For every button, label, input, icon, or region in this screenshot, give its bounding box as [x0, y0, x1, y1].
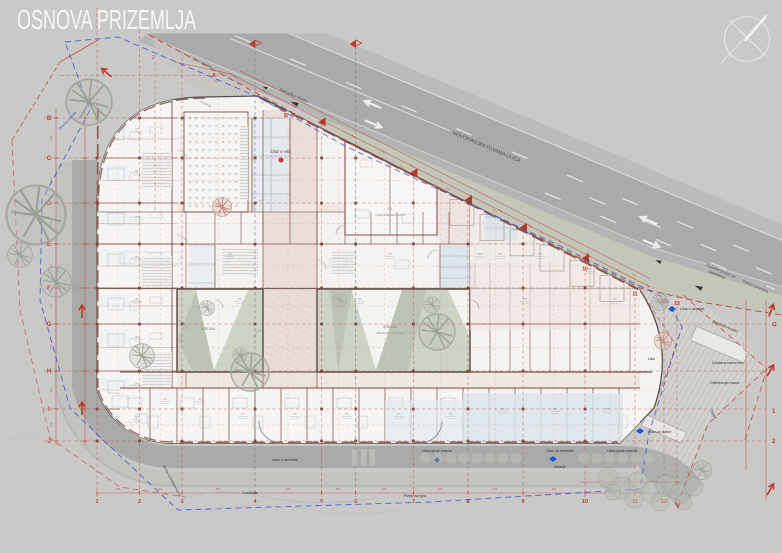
svg-text:525: 525 — [336, 487, 341, 491]
svg-text:525: 525 — [438, 487, 443, 491]
svg-text:24.5 m2: 24.5 m2 — [586, 273, 594, 275]
svg-text:24.5 m2: 24.5 m2 — [551, 413, 559, 415]
svg-text:P6: P6 — [135, 335, 139, 339]
svg-text:24.5 m2: 24.5 m2 — [536, 258, 544, 260]
svg-text:24.5 m2: 24.5 m2 — [133, 421, 141, 423]
svg-text:24.5 m2: 24.5 m2 — [356, 303, 364, 305]
svg-text:24.5 m2: 24.5 m2 — [343, 418, 351, 420]
svg-text:Ulaz za šetalište: Ulaz za šetalište — [546, 449, 574, 453]
svg-text:B: B — [47, 116, 52, 122]
svg-text:P6: P6 — [613, 297, 617, 301]
svg-text:24.5 m2: 24.5 m2 — [133, 221, 141, 223]
svg-text:24.5 m2: 24.5 m2 — [447, 418, 455, 420]
svg-text:410: 410 — [49, 135, 53, 140]
svg-text:5: 5 — [320, 499, 323, 505]
svg-text:525: 525 — [216, 487, 221, 491]
svg-text:P6: P6 — [588, 267, 592, 271]
svg-text:P6: P6 — [345, 412, 349, 416]
svg-text:Distribucija hrane: Distribucija hrane — [710, 381, 739, 385]
svg-text:410: 410 — [49, 422, 53, 427]
svg-text:7: 7 — [412, 499, 415, 505]
svg-text:P6: P6 — [293, 412, 297, 416]
svg-text:24.5 m2: 24.5 m2 — [611, 303, 619, 305]
svg-text:G: G — [772, 323, 777, 329]
svg-text:Plato za igru: Plato za igru — [404, 493, 426, 498]
svg-text:P6: P6 — [358, 297, 362, 301]
svg-text:P6: P6 — [163, 397, 167, 401]
svg-text:525: 525 — [286, 487, 291, 491]
svg-text:P6: P6 — [397, 412, 401, 416]
svg-text:24.5 m2: 24.5 m2 — [133, 341, 141, 343]
svg-text:525: 525 — [158, 487, 163, 491]
svg-text:VIŠENAMENSKA SALA: VIŠENAMENSKA SALA — [375, 212, 405, 217]
svg-text:Ulaz: Ulaz — [648, 357, 655, 361]
svg-text:P6: P6 — [449, 412, 453, 416]
svg-text:Uklanjanje smeća: Uklanjanje smeća — [607, 449, 638, 453]
svg-text:24.5 m2: 24.5 m2 — [196, 403, 204, 405]
svg-text:Ulaz u vrtić: Ulaz u vrtić — [271, 149, 292, 154]
svg-text:24.5 m2: 24.5 m2 — [395, 418, 403, 420]
svg-text:10: 10 — [582, 267, 588, 273]
svg-text:P6: P6 — [228, 252, 232, 256]
svg-text:11: 11 — [632, 292, 638, 298]
svg-text:24.5 m2: 24.5 m2 — [239, 418, 247, 420]
svg-text:P6: P6 — [135, 215, 139, 219]
svg-text:Gradilište: Gradilište — [242, 491, 258, 495]
svg-text:DECA OD 3 GODINE: DECA OD 3 GODINE — [377, 331, 404, 335]
svg-text:Ulaz u dvorište: Ulaz u dvorište — [272, 457, 299, 462]
svg-text:525: 525 — [382, 487, 387, 491]
svg-text:ATRIJUM: ATRIJUM — [383, 325, 397, 329]
svg-text:1: 1 — [95, 499, 98, 505]
svg-text:P6: P6 — [135, 415, 139, 419]
svg-text:Dostava namirnica: Dostava namirnica — [712, 361, 744, 365]
svg-text:P6: P6 — [135, 381, 139, 385]
svg-text:P6: P6 — [135, 169, 139, 173]
svg-text:24.5 m2: 24.5 m2 — [236, 303, 244, 305]
svg-text:ATRIJUM: ATRIJUM — [201, 327, 215, 331]
svg-text:24.5 m2: 24.5 m2 — [133, 133, 141, 135]
svg-text:525: 525 — [116, 487, 121, 491]
svg-text:P6: P6 — [388, 252, 392, 256]
svg-text:2: 2 — [152, 55, 155, 61]
svg-text:P6: P6 — [241, 412, 245, 416]
svg-text:OSNOVA PRIZEMLJA: OSNOVA PRIZEMLJA — [17, 4, 196, 35]
svg-text:410: 410 — [49, 303, 53, 308]
svg-text:P6: P6 — [238, 297, 242, 301]
svg-text:24.5 m2: 24.5 m2 — [603, 413, 611, 415]
svg-text:B: B — [284, 113, 288, 119]
svg-text:P6: P6 — [135, 127, 139, 131]
svg-text:P6: P6 — [498, 252, 502, 256]
svg-text:525: 525 — [493, 487, 498, 491]
svg-text:24.5 m2: 24.5 m2 — [291, 418, 299, 420]
svg-text:410: 410 — [49, 344, 53, 349]
svg-text:2: 2 — [138, 499, 141, 505]
svg-text:24.5 m2: 24.5 m2 — [476, 258, 484, 260]
svg-text:9: 9 — [521, 499, 524, 505]
svg-text:24.5 m2: 24.5 m2 — [496, 258, 504, 260]
svg-text:24.5 m2: 24.5 m2 — [133, 261, 141, 263]
svg-text:P6: P6 — [135, 297, 139, 301]
svg-text:24.5 m2: 24.5 m2 — [133, 175, 141, 177]
svg-text:410: 410 — [49, 387, 53, 392]
svg-text:10: 10 — [582, 499, 588, 505]
svg-text:24.5 m2: 24.5 m2 — [386, 258, 394, 260]
svg-text:G: G — [47, 322, 52, 328]
svg-text:Ulaz za đubre: Ulaz za đubre — [648, 430, 671, 434]
svg-text:P6: P6 — [538, 252, 542, 256]
svg-text:P6: P6 — [135, 255, 139, 259]
svg-text:šetanje: šetanje — [554, 465, 566, 469]
svg-text:24.5 m2: 24.5 m2 — [161, 403, 169, 405]
svg-text:P6: P6 — [478, 252, 482, 256]
svg-text:24.5 m2: 24.5 m2 — [133, 387, 141, 389]
svg-text:24.5 m2: 24.5 m2 — [499, 413, 507, 415]
svg-text:24.5 m2: 24.5 m2 — [133, 303, 141, 305]
svg-text:H: H — [47, 369, 51, 375]
svg-text:Uklanjanje smeća: Uklanjanje smeća — [422, 449, 453, 453]
svg-text:P6: P6 — [523, 297, 527, 301]
svg-text:Ulaz u objekat: Ulaz u objekat — [680, 307, 705, 311]
svg-text:P1: P1 — [388, 207, 392, 211]
svg-text:24.5 m2: 24.5 m2 — [521, 303, 529, 305]
svg-text:P6: P6 — [198, 397, 202, 401]
svg-text:525: 525 — [552, 487, 557, 491]
svg-text:C: C — [47, 156, 52, 162]
svg-text:24.5 m2: 24.5 m2 — [226, 258, 234, 260]
